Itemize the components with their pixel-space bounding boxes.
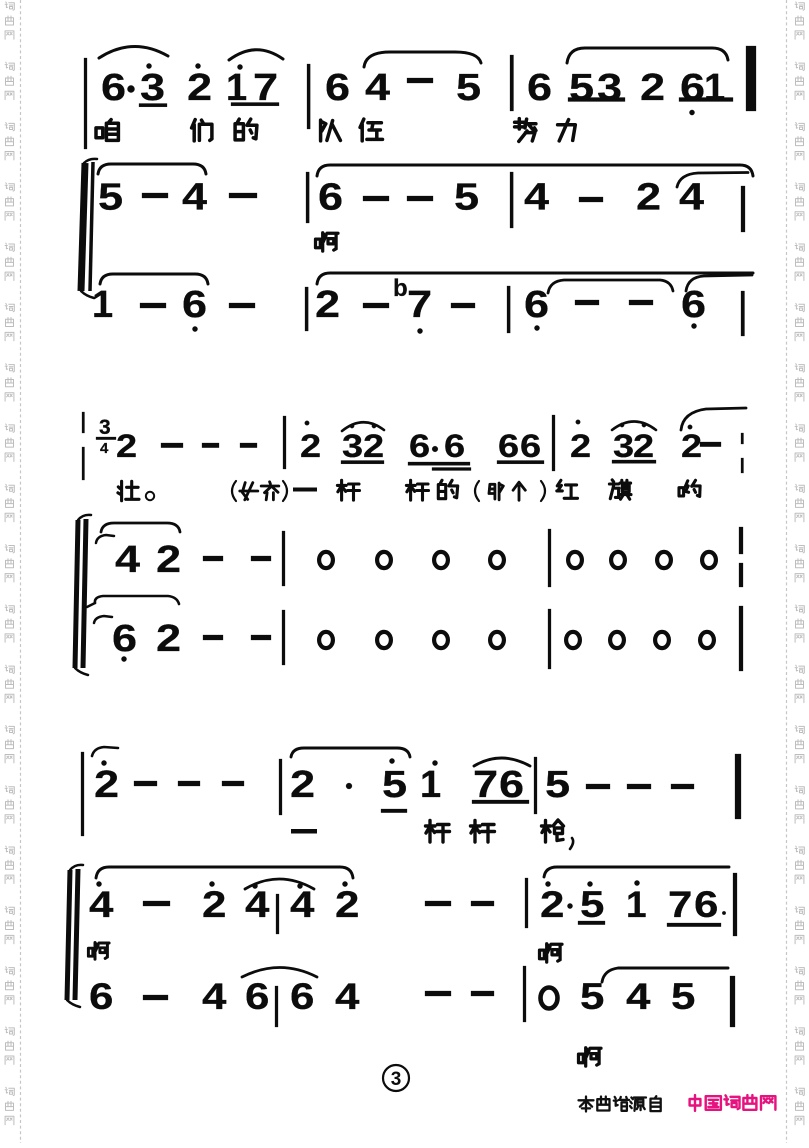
svg-text:1: 1: [626, 884, 647, 925]
svg-text:2: 2: [94, 764, 119, 806]
svg-text:3: 3: [140, 67, 165, 109]
svg-text:6: 6: [524, 284, 549, 326]
svg-text:4: 4: [365, 67, 390, 109]
svg-text:1: 1: [704, 67, 725, 109]
svg-text:6: 6: [318, 177, 343, 219]
svg-text:6: 6: [325, 67, 350, 109]
svg-text:5: 5: [98, 177, 123, 219]
svg-text:6: 6: [290, 976, 314, 1017]
svg-text:4: 4: [626, 976, 651, 1017]
svg-text:4: 4: [115, 539, 140, 581]
svg-text:6: 6: [245, 976, 269, 1017]
svg-text:6: 6: [182, 284, 207, 326]
svg-text:4: 4: [524, 177, 549, 219]
svg-text:3: 3: [613, 428, 634, 464]
svg-text:4: 4: [89, 884, 114, 925]
svg-text:7: 7: [407, 284, 432, 326]
svg-text:5: 5: [580, 884, 604, 925]
svg-text:6: 6: [694, 884, 718, 925]
svg-text:6: 6: [409, 428, 430, 464]
svg-text:1: 1: [92, 284, 113, 326]
svg-text:2: 2: [290, 764, 315, 806]
svg-text:2: 2: [156, 618, 181, 660]
svg-text:2: 2: [681, 428, 702, 464]
svg-text:2: 2: [315, 284, 340, 326]
svg-text:4: 4: [100, 440, 109, 457]
svg-text:4: 4: [335, 976, 360, 1017]
svg-text:2: 2: [540, 884, 564, 925]
svg-text:6: 6: [444, 428, 465, 464]
svg-text:5: 5: [454, 177, 479, 219]
svg-text:3: 3: [597, 67, 622, 109]
svg-text:2: 2: [116, 428, 137, 464]
svg-text:6: 6: [680, 67, 705, 109]
svg-text:6: 6: [101, 67, 126, 109]
svg-text:6: 6: [527, 67, 552, 109]
svg-text:2: 2: [363, 428, 384, 464]
svg-text:7: 7: [668, 884, 692, 925]
svg-text:4: 4: [182, 177, 207, 219]
svg-text:4: 4: [290, 884, 315, 925]
svg-text:5: 5: [545, 764, 570, 806]
svg-text:6: 6: [520, 428, 541, 464]
svg-text:2: 2: [335, 884, 359, 925]
svg-text:3: 3: [391, 1069, 402, 1090]
svg-text:1: 1: [420, 764, 441, 806]
svg-text:6: 6: [89, 976, 113, 1017]
svg-text:2: 2: [570, 428, 591, 464]
svg-text:b: b: [393, 275, 408, 302]
svg-text:2: 2: [187, 67, 212, 109]
svg-text:7: 7: [473, 764, 498, 806]
svg-text:5: 5: [569, 67, 594, 109]
svg-text:2: 2: [156, 539, 181, 581]
svg-text:4: 4: [679, 177, 704, 219]
svg-text:4: 4: [202, 976, 227, 1017]
svg-text:3: 3: [99, 416, 111, 439]
svg-text:4: 4: [245, 884, 270, 925]
svg-text:2: 2: [636, 177, 661, 219]
svg-text:3: 3: [342, 428, 363, 464]
svg-text:5: 5: [456, 67, 481, 109]
svg-text:6: 6: [499, 764, 524, 806]
svg-text:2: 2: [633, 428, 654, 464]
svg-text:6: 6: [498, 428, 519, 464]
svg-text:2: 2: [640, 67, 665, 109]
svg-text:5: 5: [382, 764, 407, 806]
svg-text:6: 6: [112, 618, 137, 660]
svg-text:2: 2: [300, 428, 321, 464]
svg-text:5: 5: [671, 976, 695, 1017]
svg-text:2: 2: [202, 884, 226, 925]
